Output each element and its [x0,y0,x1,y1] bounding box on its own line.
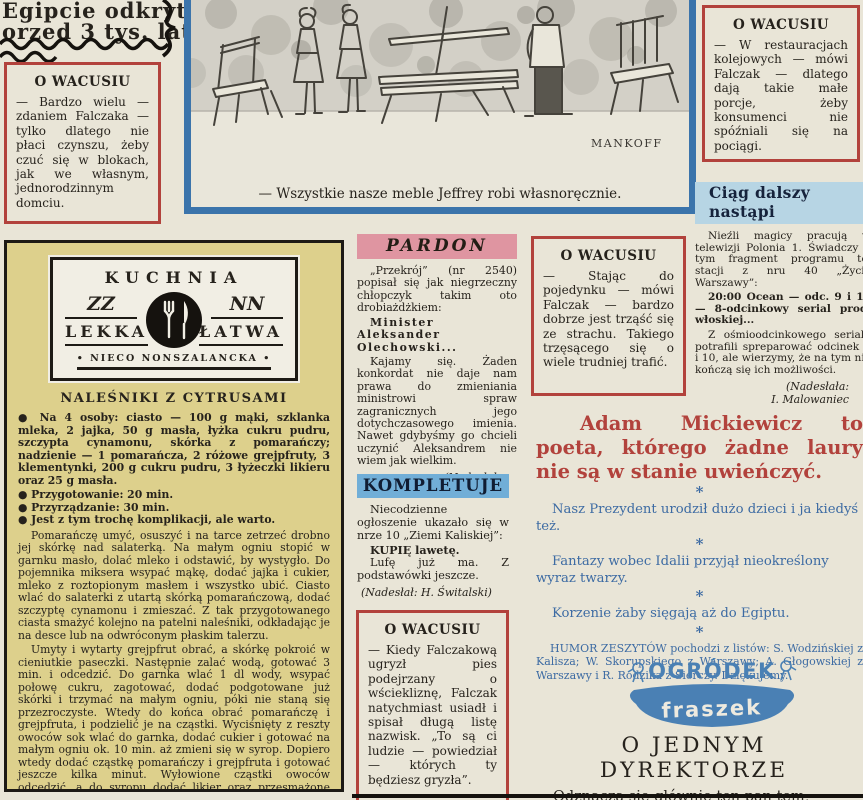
masthead-line: Egipcie odkryto [2,0,182,21]
humor-section: Adam Mickiewicz to poeta, którego żadne … [536,412,863,682]
ciag-dalszy-section: Ciąg dalszy nastąpi Nieźli magicy pracuj… [695,182,863,406]
pardon-paragraph: „Przekrój” (nr 2540) popisał się jak nie… [357,265,517,315]
kompletuje-credit: (Nadesłał: H. Świtalski) [357,586,509,599]
recipe-bullet: ● Przygotowanie: 20 min. [18,489,330,502]
wacusiu-title: O WACUSIU [16,74,149,90]
dyrektorze-section: O JEDNYM DYREKTORZE Odznacza się głównie… [525,733,863,800]
wacusiu-box-4: O WACUSIU — Kiedy Falczakową ugryzł pies… [356,610,509,800]
kompletuje-header: KOMPLETUJE [357,474,509,498]
humor-item: Fantazy wobec Idalii przyjął nieokreślon… [536,554,863,587]
kuchnia-subtitle: • NIECO NONSZALANCKA • [77,353,272,370]
kompletuje-section: KOMPLETUJE Niecodzienne ogłoszenie ukaza… [357,474,509,599]
pardon-section: PARDON „Przekrój” (nr 2540) popisał się … [357,234,517,497]
wacusiu-box-3: O WACUSIU — Stając do pojedynku — mówi F… [531,236,686,396]
wacusiu-body: — Stając do pojedynku — mówi Falczak — b… [543,269,674,370]
wacusiu-title: O WACUSIU [714,17,848,33]
ogrodek-fraszek-logo: OGRÓDEK fraszek [626,652,798,734]
kuchnia-initials-right: NN [211,293,283,319]
bottom-rule [352,794,863,798]
asterisk-separator: * [536,485,863,500]
wacusiu-body: — Kiedy Falczakową ugryzł pies podejrzan… [368,643,497,787]
cartoon-caption: — Wszystkie nasze meble Jeffrey robi wła… [191,186,689,202]
humor-item: Nasz Prezydent urodził dużo dzieci i ja … [536,502,863,535]
masthead-fragment: Egipcie odkryto orzed 3 tys. lat. [2,0,182,42]
ciag-paragraph: Z ośmioodcinkowego serialu potrafili spr… [695,330,863,377]
recipe-ingredients: ● Na 4 osoby: ciasto — 100 g mąki, szkla… [18,412,330,487]
recipe-step: Umyty i wytarty grejpfrut obrać, a skórk… [18,644,330,792]
dyrektorze-title: O JEDNYM DYREKTORZE [525,733,863,783]
cartoon-signature: MANKOFF [591,137,663,150]
ciag-paragraph: Nieźli magicy pracują w telewizji Poloni… [695,231,863,289]
fork-knife-icon [146,292,202,348]
pardon-paragraph: Kajamy się. Żaden konkordat nie daje nam… [357,356,517,468]
pardon-header: PARDON [357,234,517,259]
kompletuje-paragraph: Lufę już ma. Z podstawówki jeszcze. [357,557,509,583]
ciag-dalszy-header: Ciąg dalszy nastąpi [695,182,863,224]
humor-headline: Adam Mickiewicz to poeta, którego żadne … [536,412,863,483]
recipe-title: NALEŚNIKI Z CYTRUSAMI [7,391,341,406]
kompletuje-paragraph: Niecodzienne ogłoszenie ukazało się w nr… [357,504,509,542]
wacusiu-title: O WACUSIU [368,622,497,638]
masthead-line: orzed 3 tys. lat. [2,21,182,42]
cartoon-panel: MANKOFF — Wszystkie nasze meble Jeffrey … [184,0,696,214]
humor-item: Korzenie żaby sięgają aż do Egiptu. [536,606,863,623]
cartoon-illustration: MANKOFF [191,0,689,173]
ciag-credit: (Nadesłała: [695,380,849,393]
wacusiu-title: O WACUSIU [543,248,674,264]
kuchnia-word-latwa: ŁATWA [199,322,283,346]
ogrodek-word: OGRÓDEK [648,658,776,683]
fraszek-word: fraszek [661,695,762,722]
magazine-page: Egipcie odkryto orzed 3 tys. lat. O WACU… [0,0,863,800]
wacusiu-body: — Bardzo wielu — zdaniem Falczaka — tylk… [16,95,149,210]
kuchnia-recipe-box: KUCHNIA ZZ NN LEKKA ŁATWA • NIECO NONSZA… [4,240,344,792]
kuchnia-logo: KUCHNIA ZZ NN LEKKA ŁATWA • NIECO NONSZA… [50,257,298,381]
asterisk-separator: * [536,625,863,640]
pardon-quote: Minister Aleksander Olechowski... [357,317,517,354]
recipe-bullet: ● Jest z tym trochę komplikacji, ale war… [18,514,330,527]
ciag-credit: I. Malowaniec [695,393,849,406]
ciag-tv-listing: 20:00 Ocean — odc. 9 i 10 — 8-odcinkowy … [695,292,863,327]
recipe-step: Pomarańczę umyć, osuszyć i na tarce zetr… [18,530,330,643]
wacusiu-body: — W restauracjach kolejowych — mówi Falc… [714,38,848,153]
wacusiu-box-1: O WACUSIU — Bardzo wielu — zdaniem Falcz… [4,62,161,224]
kuchnia-initials-left: ZZ [65,293,137,319]
asterisk-separator: * [536,589,863,604]
kuchnia-word-lekka: LEKKA [65,322,148,346]
kuchnia-logo-title: KUCHNIA [53,268,295,287]
wacusiu-box-2: O WACUSIU — W restauracjach kolejowych —… [702,5,860,162]
asterisk-separator: * [536,537,863,552]
